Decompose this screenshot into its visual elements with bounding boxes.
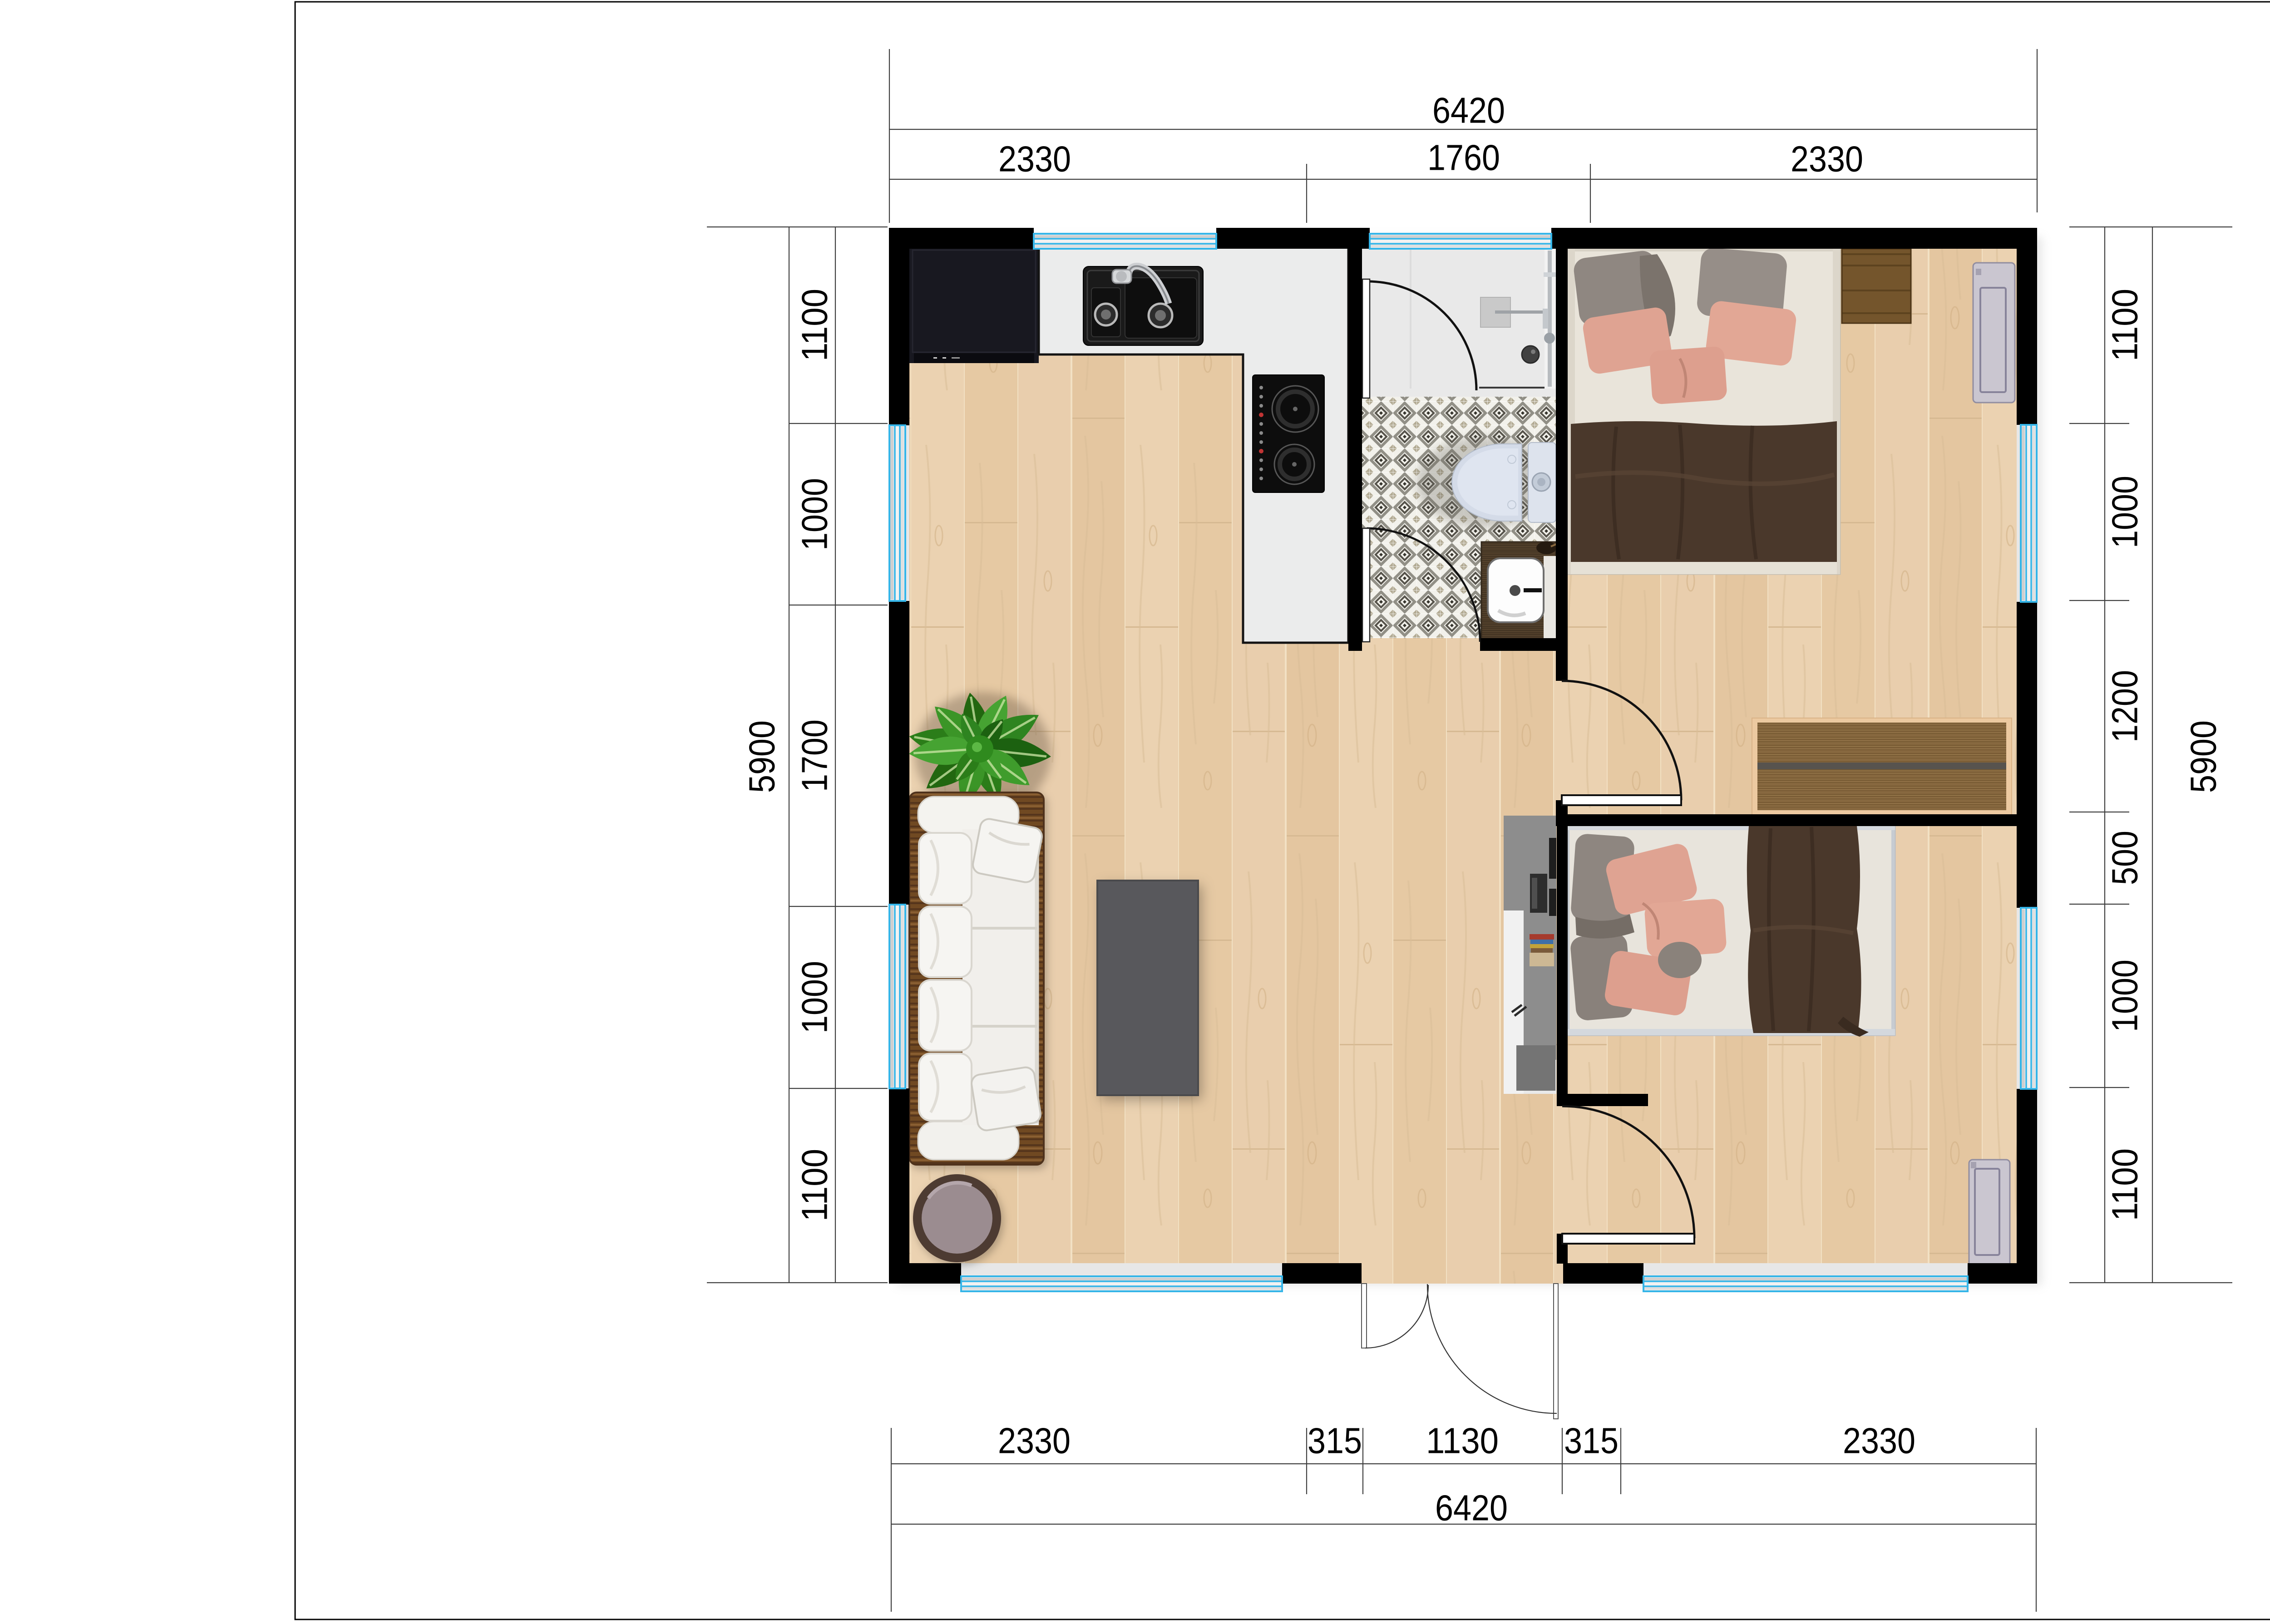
svg-text:2330: 2330 [998,139,1071,179]
svg-text:1000: 1000 [794,961,835,1033]
svg-text:1760: 1760 [1427,138,1500,178]
svg-text:5900: 5900 [2183,720,2224,793]
svg-text:2330: 2330 [1843,1421,1915,1461]
svg-text:6420: 6420 [1435,1488,1508,1528]
svg-text:1130: 1130 [1426,1421,1499,1461]
svg-text:1000: 1000 [2105,476,2145,548]
svg-text:6420: 6420 [1432,90,1505,131]
svg-text:1000: 1000 [794,478,835,551]
svg-text:1100: 1100 [2105,1148,2145,1221]
svg-text:2330: 2330 [1791,139,1863,179]
svg-text:1100: 1100 [794,289,835,361]
svg-text:1100: 1100 [2105,289,2145,361]
svg-text:1700: 1700 [794,719,835,792]
svg-text:5900: 5900 [742,720,782,793]
svg-text:500: 500 [2105,831,2145,885]
svg-text:1100: 1100 [794,1149,835,1221]
svg-text:1000: 1000 [2105,960,2145,1032]
svg-text:2330: 2330 [998,1421,1071,1461]
svg-text:1200: 1200 [2105,670,2145,743]
svg-text:315: 315 [1564,1421,1619,1461]
svg-text:315: 315 [1308,1421,1362,1461]
